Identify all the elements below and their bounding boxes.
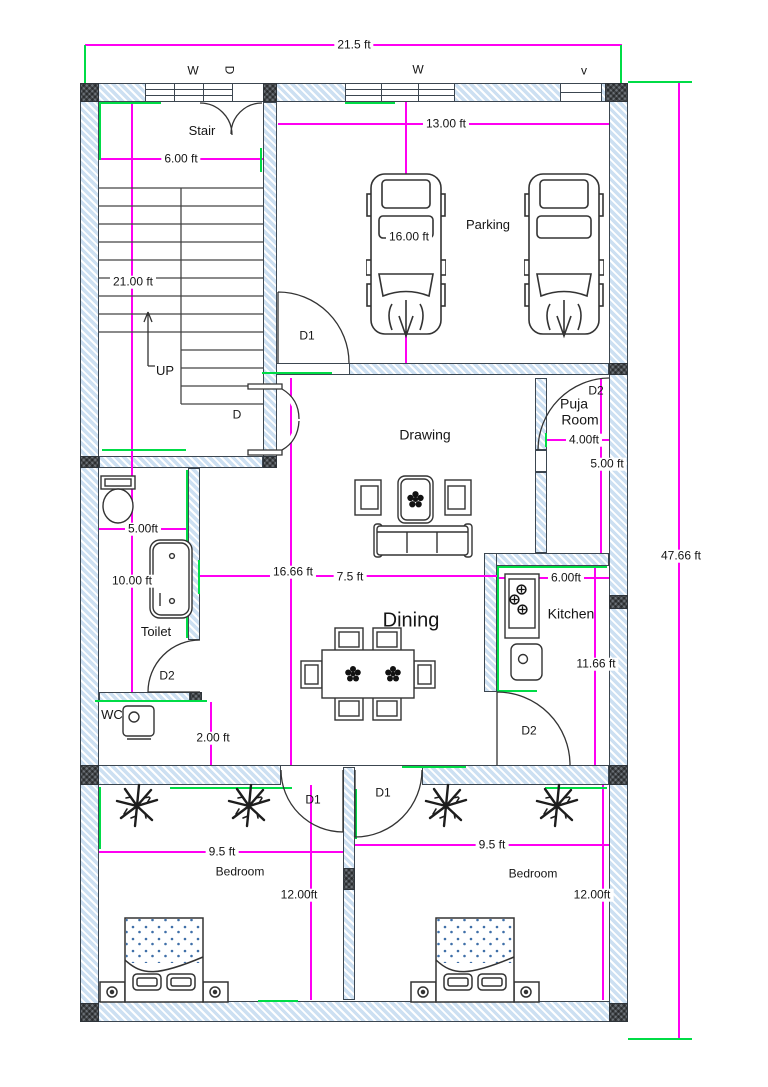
label-up: UP [156,364,174,378]
wall-mid-left [80,765,281,785]
dim-kitchen-width: 6.00ft [548,572,584,585]
label-door-drawing: D [233,409,242,422]
dim-stair-length: 21.00 ft [110,276,156,289]
drawing-table-flower [407,491,423,507]
label-drawing: Drawing [399,428,450,443]
bed-2 [411,918,539,1002]
toilet-wc-fixture [101,476,135,523]
label-window-parking: W [412,64,423,77]
plan-linework [0,0,768,1087]
door-arc-parking-d1 [278,292,349,363]
dim-toilet-width: 5.00ft [125,523,161,536]
dim-stair-width: 6.00 ft [161,153,200,166]
column-right-kitchen [609,595,628,609]
label-dining: Dining [383,611,440,632]
dim-drawing-width: 16.66 ft [270,566,316,579]
column-stair-top [263,83,277,102]
wall-stair-right [263,102,277,468]
puja-wall-window [535,450,547,472]
window-parking [345,83,455,102]
column-top-left [80,83,99,102]
stair-treads [99,188,263,404]
dimline-left-long [131,102,133,692]
label-door-puja-d2: D2 [588,385,603,398]
column-bottom-right [609,1003,628,1022]
wall-left [80,83,99,1022]
dim-toilet-depth: 10.00 ft [109,575,155,588]
floor-plan-canvas: 21.5 ft 47.66 ft 6.00 ft 21.00 ft 13.00 … [0,0,768,1087]
column-divider [343,868,355,890]
stair-up-arrow [144,312,155,366]
label-door-bedroom1-d1: D1 [305,794,320,807]
label-stair: Stair [189,124,216,138]
dim-puja-width: 4.00ft [566,434,602,447]
dining-flower-2 [385,666,401,682]
plant-2 [229,785,269,826]
wall-toilet-right [188,468,200,640]
column-top-right [605,83,628,102]
wall-bottom [80,1001,628,1022]
label-door-toilet-d2: D2 [159,670,174,683]
label-parking: Parking [466,218,510,232]
label-door-bedroom2-d1: D1 [375,787,390,800]
label-bedroom2: Bedroom [509,868,558,881]
dim-overall-height: 47.66 ft [658,550,704,563]
dim-wc-width: 2.00 ft [193,732,232,745]
kitchen-sink [511,644,542,680]
plant-1 [117,785,157,826]
dim-dining-width: 7.5 ft [334,571,367,584]
column-bottom-left [80,1003,99,1022]
dining-flower-1 [345,666,361,682]
wall-parking-bottom [349,363,609,375]
wall-right [609,83,628,1022]
plant-3 [426,785,466,826]
bed-1 [100,918,228,1002]
label-bedroom1: Bedroom [216,866,265,879]
dim-overall-width: 21.5 ft [334,39,373,52]
label-window-stair: W [187,65,198,78]
label-toilet: Toilet [141,625,171,639]
dim-bedroom2-width: 9.5 ft [476,839,509,852]
wc-washbasin [123,706,154,739]
dim-parking-depth: 16.00 ft [386,231,432,244]
wall-kitchen-top [484,553,609,566]
wall-puja-left-lower [535,472,547,553]
dim-bedroom1-depth: 12.00ft [278,889,321,902]
door-opening-stair-top [233,84,263,101]
column-left-midwall [80,765,99,785]
wall-kitchen-left [484,553,497,692]
sofa-set [355,476,472,557]
dining-set [301,628,435,720]
dim-bedroom2-depth: 12.00ft [571,889,614,902]
wall-mid-right [422,765,609,785]
dim-bedroom1-width: 9.5 ft [206,846,239,859]
door-arc-toilet-d2 [148,640,200,692]
label-door-kitchen-d2: D2 [521,725,536,738]
label-door-parking-d1: D1 [299,330,314,343]
label-puja-line2: Room [561,413,598,428]
column-stair-bottom [263,456,277,468]
kitchen-stove [505,574,539,638]
dim-kitchen-depth: 11.66 ft [573,658,618,671]
column-left-mid [80,456,99,468]
label-puja-line1: Puja [560,397,588,412]
plant-4 [537,785,577,826]
label-kitchen: Kitchen [548,607,595,622]
dim-puja-depth: 5.00 ft [587,458,626,471]
label-vent: v [581,65,587,78]
dim-parking-width: 13.00 ft [423,118,469,131]
column-right-midwall [609,765,628,785]
label-wc: WC [101,708,123,722]
label-door-top: D [223,66,236,75]
column-right-parking [609,363,628,375]
car-2 [524,174,604,336]
window-stair [145,83,233,102]
wall-under-stair [99,456,263,468]
